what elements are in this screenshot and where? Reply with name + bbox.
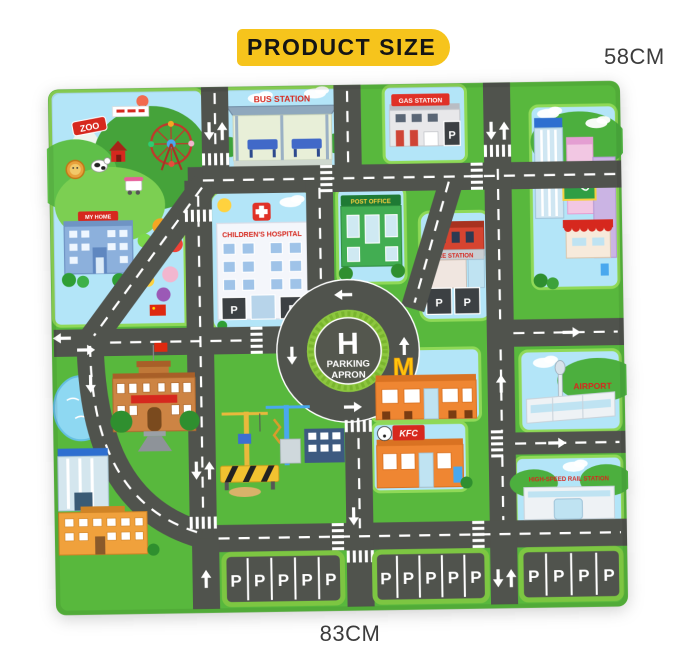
badge-label: PRODUCT SIZE — [247, 34, 436, 61]
parking-letter: P — [470, 568, 482, 587]
parking-letter: P — [403, 569, 415, 588]
parking-letter: P — [435, 297, 443, 309]
parking-row-1: P P P P P — [224, 553, 343, 605]
childrens-hospital-label: CHILDREN'S HOSPITAL — [222, 231, 302, 239]
product-image: PRODUCT SIZE 58CM 83CM — [0, 0, 681, 666]
width-dimension-label: 83CM — [300, 621, 400, 647]
parking-row-2: P P P P P — [374, 550, 487, 602]
parking-letter: P — [448, 129, 456, 141]
parking-apron-label-2: APRON — [331, 370, 366, 382]
school-flag-icon — [154, 343, 167, 352]
parking-row-3: P P P P — [521, 548, 622, 600]
parking-letter: P — [603, 566, 615, 585]
parking-letter: P — [254, 571, 266, 590]
product-size-badge: PRODUCT SIZE — [237, 29, 450, 66]
parking-letter: P — [301, 570, 313, 589]
my-home-label: MY HOME — [85, 215, 112, 221]
rail-station-label: HIGH-SPEED RAIL STATION — [529, 476, 609, 483]
china-flag-icon — [150, 305, 166, 316]
parking-letter: P — [230, 304, 238, 316]
play-mat: ZOO — [46, 79, 630, 618]
kfc-sign: KFC — [377, 425, 424, 441]
play-mat-graphic: ZOO — [46, 79, 630, 618]
parking-apron-label-1: PARKING — [327, 359, 370, 371]
height-dimension-label: 58CM — [604, 44, 665, 70]
airport-label: AIRPORT — [573, 381, 612, 392]
red-cross-icon — [252, 203, 270, 221]
post-office-label: POST OFFICE — [351, 199, 391, 206]
gas-parking-sign: P — [444, 121, 460, 145]
parking-letter: P — [448, 568, 460, 587]
office-building — [58, 448, 109, 511]
apartment-building — [58, 505, 159, 557]
parking-letter: P — [578, 566, 590, 585]
kfc-label: KFC — [399, 428, 418, 438]
gas-station-label: GAS STATION — [399, 97, 443, 105]
parking-letter: P — [325, 570, 337, 589]
parking-letter: P — [278, 571, 290, 590]
lion-icon — [66, 160, 84, 178]
parking-letter: P — [553, 566, 565, 585]
parking-letter: P — [528, 567, 540, 586]
welcome-banner — [112, 106, 148, 117]
parking-letter: P — [230, 571, 242, 590]
parking-letter: P — [380, 569, 392, 588]
helipad-letter: H — [337, 328, 359, 361]
parking-letter: P — [425, 568, 437, 587]
parking-letter: P — [463, 297, 471, 309]
bus-station-label: BUS STATION — [254, 94, 311, 105]
school-banner — [131, 395, 177, 404]
